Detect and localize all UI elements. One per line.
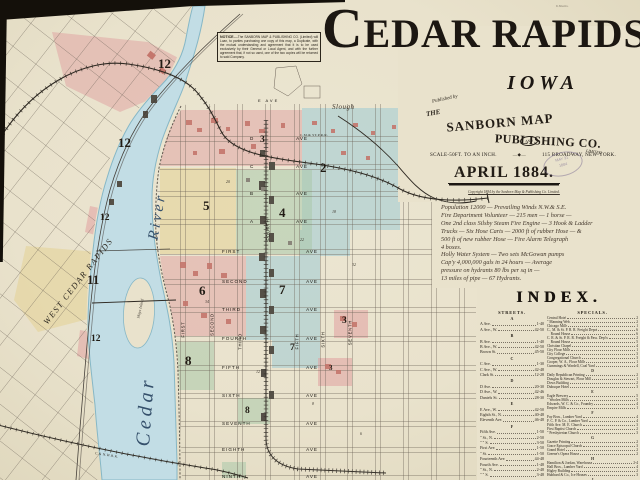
dotted-leader bbox=[592, 379, 635, 380]
lot-number: 12 bbox=[256, 369, 260, 374]
dotted-leader bbox=[609, 338, 635, 339]
avenue-name: A bbox=[250, 219, 254, 224]
statistics-line: 4 boxes. bbox=[441, 244, 639, 252]
avenue-name: THIRD bbox=[222, 307, 241, 312]
specials-header: SPECIALS. bbox=[547, 310, 638, 315]
avenue-label: FIRST AVE bbox=[222, 249, 318, 254]
street-label: FIFTH bbox=[295, 322, 300, 362]
sheet-count-note: 6 Sheets. bbox=[556, 4, 568, 8]
dotted-leader bbox=[584, 467, 636, 468]
block-number: 12 bbox=[100, 213, 110, 223]
avenue-suffix: AVE bbox=[306, 393, 318, 398]
dotted-leader bbox=[492, 365, 536, 366]
dotted-leader bbox=[568, 326, 635, 327]
dotted-leader bbox=[492, 387, 534, 388]
dotted-leader bbox=[570, 400, 635, 401]
dotted-leader bbox=[498, 370, 534, 371]
slough-label: Slough bbox=[332, 103, 354, 111]
avenue-suffix: AVE bbox=[306, 421, 318, 426]
e-avenue-label: E AVE bbox=[258, 98, 279, 103]
avenue-suffix: AVE bbox=[306, 365, 318, 370]
dotted-leader bbox=[571, 471, 635, 472]
dotted-leader bbox=[498, 393, 533, 394]
avenue-name: SIXTH bbox=[222, 393, 241, 398]
block-number: 8 bbox=[185, 353, 192, 369]
avenue-label: THIRD AVE bbox=[222, 307, 318, 312]
dotted-leader bbox=[499, 398, 534, 399]
dotted-leader bbox=[586, 375, 635, 376]
statistics-line: One 2nd class Silsby Steam Fire Engine —… bbox=[441, 220, 639, 228]
avenue-suffix: AVE bbox=[306, 336, 318, 341]
railroad-label-top: C.M.& ST.P.R.R. bbox=[300, 133, 328, 137]
avenue-suffix: AVE bbox=[306, 447, 318, 452]
index-row: Brown St. 45-50 bbox=[480, 349, 544, 354]
lot-number: 32 bbox=[352, 262, 356, 267]
dotted-leader bbox=[494, 438, 536, 439]
dotted-leader bbox=[492, 342, 536, 343]
statistics-line: Cap'y 4,000,000 gals in 24 hours — Avera… bbox=[441, 259, 639, 267]
avenue-suffix: AVE bbox=[306, 279, 318, 284]
street-label: SIXTH bbox=[321, 320, 326, 360]
avenue-name: D bbox=[250, 136, 254, 141]
index-row: ″ ″ S. 3-48 bbox=[480, 472, 544, 477]
avenue-suffix: AVE bbox=[306, 474, 318, 479]
block-number: 7 bbox=[279, 282, 286, 298]
streets-header: STREETS. bbox=[480, 310, 544, 315]
index-row: ″ Presbyterian Church 3 bbox=[547, 431, 638, 435]
dotted-leader bbox=[580, 433, 635, 434]
avenue-name: FOURTH bbox=[222, 336, 247, 341]
dotted-leader bbox=[503, 421, 533, 422]
dotted-leader bbox=[498, 347, 534, 348]
sanborn-map-sheet: D AVE C AVE B AVE A AVE FIRST AVE SECOND… bbox=[0, 0, 640, 480]
statistics-line: Holly Water System — Two sets McGowan pu… bbox=[441, 251, 639, 259]
lot-number: 8 bbox=[312, 401, 314, 406]
dotted-leader bbox=[506, 460, 533, 461]
dotted-leader bbox=[567, 408, 635, 409]
index-row: Hubbard & Co., Ice Houses 3 bbox=[547, 473, 638, 477]
street-label: FIRST bbox=[181, 310, 186, 350]
street-label: SECOND bbox=[210, 305, 215, 345]
index-specials-column: SPECIALS. Central Hotel 2 ″ Manning Web.… bbox=[547, 309, 638, 480]
avenue-suffix: AVE bbox=[306, 249, 318, 254]
dotted-leader bbox=[566, 354, 635, 355]
block-number: 8 bbox=[245, 406, 250, 416]
avenue-label: SEVENTH AVE bbox=[222, 421, 318, 426]
avenue-name: FIRST bbox=[222, 249, 240, 254]
dotted-leader bbox=[570, 387, 635, 388]
dotted-leader bbox=[583, 446, 635, 447]
dotted-leader bbox=[566, 450, 635, 451]
state-label: IOWA bbox=[468, 72, 618, 95]
publisher-notice-box: NOTICE.—The SANBORN MAP & PUBLISHING CO.… bbox=[217, 32, 321, 62]
dotted-leader bbox=[593, 463, 632, 464]
avenue-suffix: AVE bbox=[296, 191, 308, 196]
lot-number: 6 bbox=[360, 431, 362, 436]
lot-number: 22 bbox=[300, 237, 304, 242]
statistics-line: 500 ft of new rubber Hose — Fire Alarm T… bbox=[441, 236, 639, 244]
city-statistics: Population 12000 — Prevailing Winds N.W.… bbox=[441, 204, 639, 283]
dotted-leader bbox=[498, 410, 534, 411]
index-row: A Ave., W. 42-50 bbox=[480, 327, 544, 332]
dotted-leader bbox=[596, 366, 635, 367]
avenue-name: C bbox=[250, 164, 254, 169]
statistics-line: Population 12000 — Prevailing Winds N.W.… bbox=[441, 204, 639, 212]
index-title: INDEX. bbox=[480, 289, 638, 307]
index-row: Daniels St. 28-30 bbox=[480, 395, 544, 400]
dotted-leader bbox=[500, 465, 536, 466]
block-number: 3 bbox=[342, 316, 347, 326]
block-number: 5 bbox=[203, 198, 210, 214]
index-row: Cummings & Wardell, Coal Yard 4 bbox=[547, 364, 638, 368]
dotted-leader bbox=[580, 454, 635, 455]
block-number: 12 bbox=[118, 135, 131, 151]
avenue-label: SECOND AVE bbox=[222, 279, 318, 284]
avenue-label: NINTH AVE bbox=[222, 474, 318, 479]
avenue-label: FOURTH AVE bbox=[222, 336, 318, 341]
dotted-leader bbox=[588, 475, 635, 476]
index-row: Greene's Opera House 2 bbox=[547, 452, 638, 456]
avenue-label: EIGHTH AVE bbox=[222, 447, 318, 452]
lot-number: 34 bbox=[205, 299, 209, 304]
statistics-line: pressure on hydrants 80 lbs per sq in — bbox=[441, 267, 639, 275]
block-number: 3 bbox=[260, 135, 265, 145]
statistics-line: Fire Department Volunteer — 215 men — 1 … bbox=[441, 212, 639, 220]
streets-rows: A A Ave. 1-40 A Ave., W. bbox=[480, 316, 544, 478]
dotted-leader bbox=[494, 470, 536, 471]
dotted-leader bbox=[577, 429, 635, 430]
block-number: 3 bbox=[329, 364, 333, 372]
dotted-leader bbox=[570, 383, 635, 384]
dotted-leader bbox=[583, 425, 635, 426]
north-blocks bbox=[274, 66, 320, 98]
dotted-leader bbox=[497, 353, 533, 354]
dotted-leader bbox=[490, 443, 536, 444]
dotted-leader bbox=[586, 362, 635, 363]
dotted-leader bbox=[497, 433, 536, 434]
block-number: 12 bbox=[91, 334, 101, 344]
dotted-leader bbox=[594, 404, 635, 405]
map-title: Cedar Rapids bbox=[322, 6, 634, 57]
dotted-leader bbox=[498, 330, 534, 331]
dotted-leader bbox=[571, 334, 635, 335]
avenue-name: SEVENTH bbox=[222, 421, 251, 426]
dotted-leader bbox=[495, 375, 533, 376]
dotted-leader bbox=[572, 322, 636, 323]
scale-divider-ornament: —◆— bbox=[513, 152, 526, 158]
statistics-line: Trucks — Six Hose Carts — 2000 ft of rub… bbox=[441, 228, 639, 236]
dotted-leader bbox=[496, 449, 535, 450]
dotted-leader bbox=[488, 454, 536, 455]
block-number: 12 bbox=[158, 56, 171, 72]
specials-rows: Central Hotel 2 ″ Manning Web. 2 Chicago… bbox=[547, 316, 638, 480]
scale-label: SCALE-50FT. TO AN INCH. bbox=[430, 153, 497, 158]
dotted-leader bbox=[490, 476, 536, 477]
block-number: 6 bbox=[199, 283, 206, 299]
dotted-leader bbox=[571, 342, 635, 343]
dotted-leader bbox=[503, 415, 534, 416]
avenue-name: EIGHTH bbox=[222, 447, 245, 452]
avenue-name: B bbox=[250, 191, 254, 196]
dotted-leader bbox=[583, 417, 635, 418]
avenue-label: C AVE bbox=[250, 164, 308, 169]
street-label: SEVENTH bbox=[348, 313, 353, 353]
avenue-suffix: AVE bbox=[296, 164, 308, 169]
dotted-leader bbox=[571, 442, 635, 443]
lot-number: 18 bbox=[332, 209, 336, 214]
scale-line: SCALE-50FT. TO AN INCH. —◆— 115 BROADWAY… bbox=[430, 152, 616, 158]
index-row: Dubuque Hotel 3 bbox=[547, 385, 638, 389]
avenue-label: SIXTH AVE bbox=[222, 393, 318, 398]
avenue-suffix: AVE bbox=[306, 307, 318, 312]
index-streets-column: STREETS. A A Ave. 1-40 bbox=[480, 309, 544, 480]
dotted-leader bbox=[572, 346, 635, 347]
avenue-label: FIFTH AVE bbox=[222, 365, 318, 370]
block-number: 2 bbox=[320, 160, 327, 176]
avenue-name: SECOND bbox=[222, 279, 248, 284]
dotted-leader bbox=[492, 325, 536, 326]
index-panel: INDEX. STREETS. A A Ave. bbox=[480, 289, 638, 480]
dotted-leader bbox=[569, 396, 635, 397]
index-row: Clark St. 12-28 bbox=[480, 372, 544, 377]
notice-body: —The SANBORN MAP & PUBLISHING CO. (Limit… bbox=[220, 35, 318, 59]
dotted-leader bbox=[582, 358, 636, 359]
avenue-name: FIFTH bbox=[222, 365, 240, 370]
copyright-line: Copyright 1884 by the Sanborn Map & Publ… bbox=[446, 190, 582, 194]
lot-number: 20 bbox=[226, 179, 230, 184]
avenue-suffix: AVE bbox=[296, 219, 308, 224]
avenue-label: B AVE bbox=[250, 191, 308, 196]
dotted-leader bbox=[567, 318, 635, 319]
dotted-leader bbox=[571, 350, 635, 351]
block-number: 4 bbox=[279, 205, 286, 221]
block-number: 7 bbox=[290, 343, 295, 353]
dotted-leader bbox=[598, 330, 635, 331]
street-label: THIRD bbox=[238, 322, 243, 362]
avenue-name: NINTH bbox=[222, 474, 241, 479]
statistics-line: 13 miles of pipe — 67 Hydrants. bbox=[441, 275, 639, 283]
index-row: Empire Mills 1 bbox=[547, 406, 638, 410]
dotted-leader bbox=[589, 421, 636, 422]
street-label: FOURTH bbox=[266, 210, 271, 250]
index-row: Eleventh Ave. 46-48 bbox=[480, 417, 544, 422]
